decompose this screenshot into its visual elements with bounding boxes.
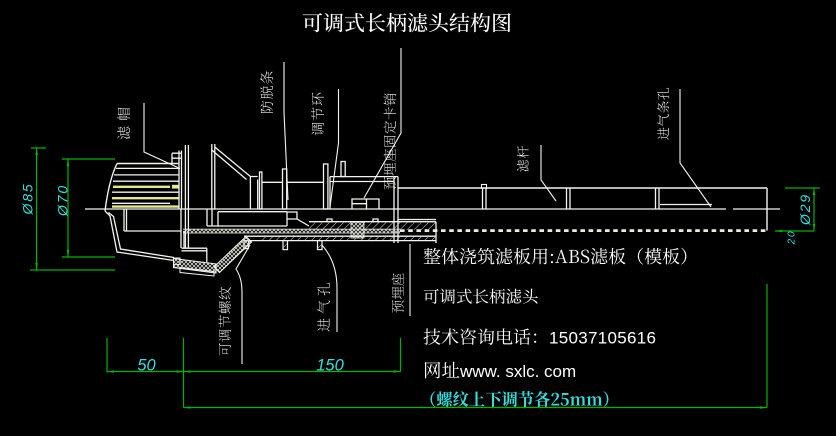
- svg-text:150: 150: [316, 357, 344, 375]
- svg-text:Ø29: Ø29: [797, 193, 813, 226]
- svg-text:Ø85: Ø85: [20, 183, 36, 216]
- svg-text:15037105616: 15037105616: [549, 329, 656, 348]
- svg-text:20: 20: [787, 230, 798, 246]
- svg-text:Ø70: Ø70: [55, 184, 71, 217]
- svg-text:www. sxlc. com: www. sxlc. com: [459, 362, 576, 381]
- svg-text:50: 50: [137, 357, 156, 375]
